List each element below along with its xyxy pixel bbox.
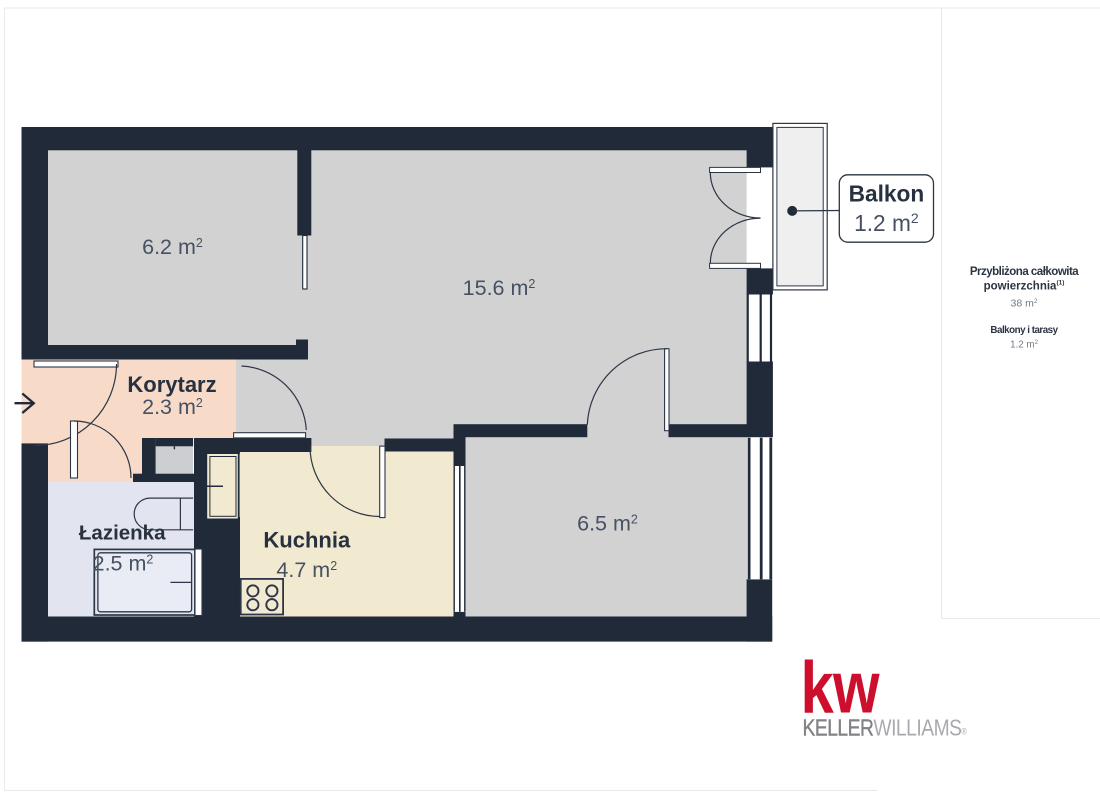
svg-text:Łazienka: Łazienka bbox=[79, 522, 166, 545]
svg-text:6.5 m2: 6.5 m2 bbox=[577, 512, 638, 536]
svg-text:powierzchnia(1): powierzchnia(1) bbox=[984, 280, 1065, 293]
svg-text:1.2 m2: 1.2 m2 bbox=[1010, 340, 1039, 351]
svg-text:KELLERWILLIAMS®: KELLERWILLIAMS® bbox=[803, 715, 967, 741]
svg-text:38 m2: 38 m2 bbox=[1011, 298, 1038, 310]
svg-text:Korytarz: Korytarz bbox=[127, 372, 216, 397]
svg-text:4.7 m2: 4.7 m2 bbox=[276, 558, 337, 582]
svg-text:Balkony i tarasy: Balkony i tarasy bbox=[990, 325, 1058, 336]
svg-text:2.5 m2: 2.5 m2 bbox=[93, 552, 154, 576]
svg-text:6.2 m2: 6.2 m2 bbox=[142, 235, 203, 259]
svg-text:Kuchnia: Kuchnia bbox=[263, 528, 351, 553]
svg-text:15.6 m2: 15.6 m2 bbox=[463, 276, 536, 300]
svg-text:1.2 m2: 1.2 m2 bbox=[854, 210, 919, 236]
svg-text:Balkon: Balkon bbox=[849, 181, 925, 207]
svg-text:Przybliżona całkowita: Przybliżona całkowita bbox=[970, 266, 1079, 278]
svg-text:2.3 m2: 2.3 m2 bbox=[142, 395, 203, 419]
